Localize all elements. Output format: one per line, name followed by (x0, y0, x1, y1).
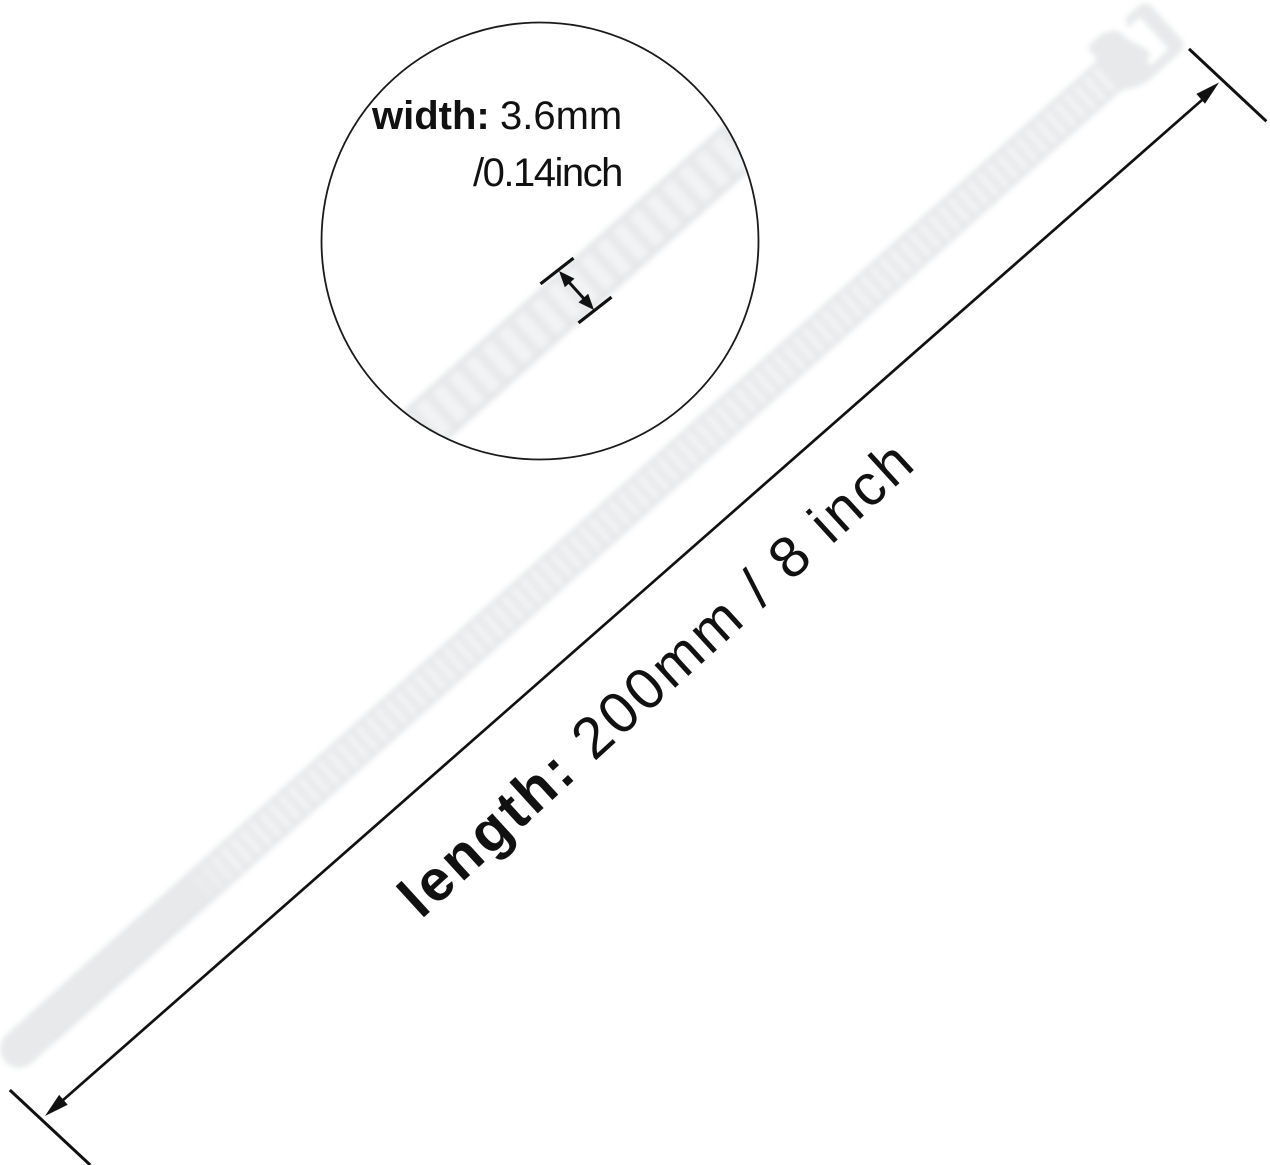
svg-text:3.6mm: 3.6mm (500, 94, 622, 138)
svg-text:/0.14inch: /0.14inch (473, 151, 622, 195)
svg-text:width:: width: (371, 94, 490, 138)
